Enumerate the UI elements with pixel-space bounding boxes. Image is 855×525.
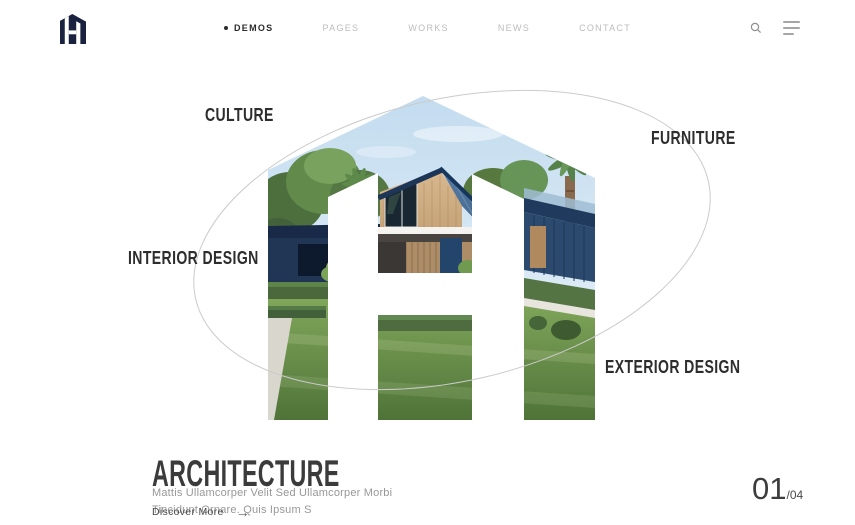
category-label-furniture: FURNITURE xyxy=(651,129,736,147)
pagination-total: /04 xyxy=(786,489,803,501)
hero-house-collage xyxy=(268,96,595,420)
category-label-interior-design: INTERIOR DESIGN xyxy=(128,249,259,267)
nav-item-works[interactable]: WORKS xyxy=(408,23,449,33)
nav-item-news[interactable]: NEWS xyxy=(498,23,530,33)
discover-more-label: Discover More xyxy=(152,506,224,518)
pagination-current: 01 xyxy=(752,473,786,504)
nav-label: DEMOS xyxy=(234,23,274,33)
header: DEMOS PAGES WORKS NEWS CONTACT xyxy=(0,0,855,56)
active-indicator-dot xyxy=(224,26,228,30)
nav-label: WORKS xyxy=(408,23,449,33)
discover-more-link[interactable]: Discover More → xyxy=(152,505,250,519)
slide-pagination: 01 /04 xyxy=(752,473,803,504)
category-label-exterior-design: EXTERIOR DESIGN xyxy=(605,358,740,376)
menu-hamburger-icon[interactable] xyxy=(783,21,800,35)
nav-label: PAGES xyxy=(323,23,360,33)
category-label-culture: CULTURE xyxy=(205,106,274,124)
nav-item-demos[interactable]: DEMOS xyxy=(224,23,274,33)
nav-label: NEWS xyxy=(498,23,530,33)
nav-label: CONTACT xyxy=(579,23,631,33)
arrow-right-icon: → xyxy=(236,505,250,519)
header-actions xyxy=(749,0,800,56)
main-nav: DEMOS PAGES WORKS NEWS CONTACT xyxy=(0,0,855,56)
nav-item-contact[interactable]: CONTACT xyxy=(579,23,631,33)
search-icon[interactable] xyxy=(749,21,763,35)
nav-item-pages[interactable]: PAGES xyxy=(323,23,360,33)
